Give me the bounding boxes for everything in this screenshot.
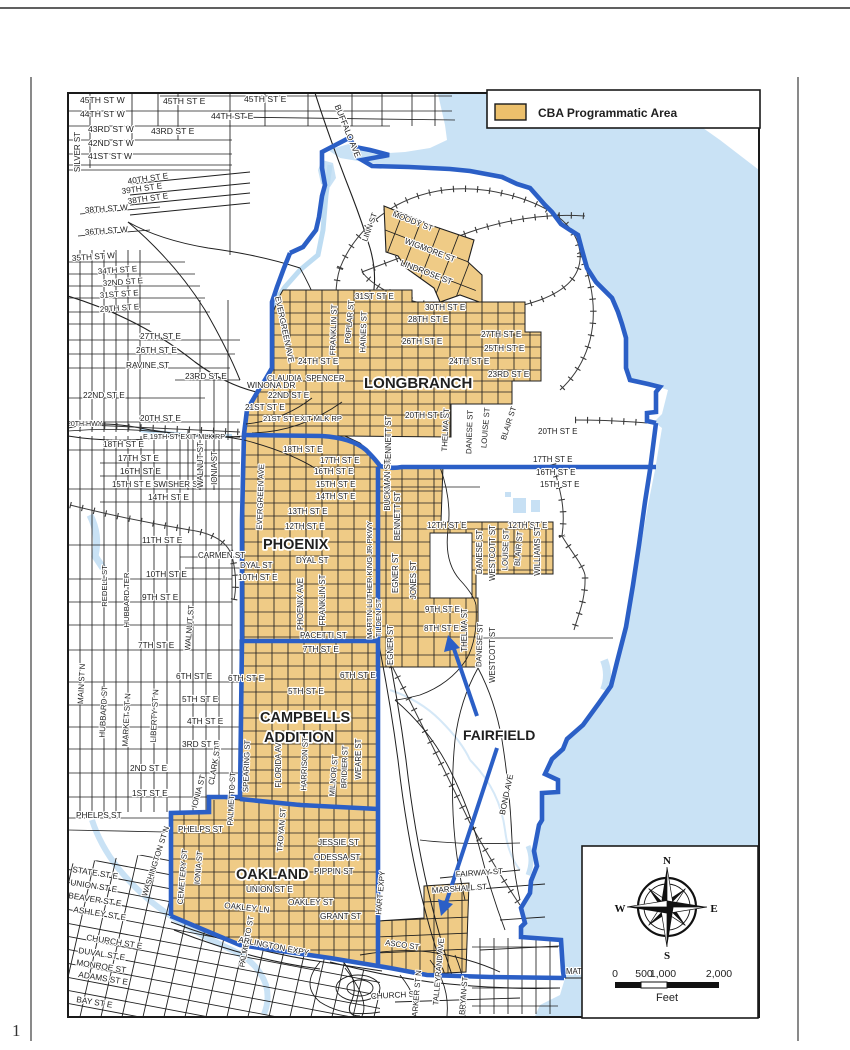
svg-text:DYAL ST: DYAL ST (296, 556, 329, 565)
svg-text:FLORIDA AV: FLORIDA AV (274, 742, 283, 788)
svg-text:23RD ST E: 23RD ST E (185, 371, 227, 381)
svg-text:6TH ST E: 6TH ST E (228, 673, 265, 683)
svg-text:15TH ST E: 15TH ST E (540, 480, 579, 489)
svg-text:31ST ST E: 31ST ST E (355, 292, 394, 301)
svg-text:IONIA ST: IONIA ST (210, 451, 219, 485)
svg-text:WESTCOTT ST: WESTCOTT ST (488, 525, 497, 581)
svg-text:E 19TH ST EXIT MLK RP: E 19TH ST EXIT MLK RP (143, 432, 225, 441)
svg-text:BUCKMAN ST: BUCKMAN ST (383, 459, 392, 510)
svg-text:4TH ST E: 4TH ST E (187, 716, 224, 726)
svg-text:MAT: MAT (566, 967, 582, 976)
svg-text:S: S (664, 950, 670, 962)
svg-text:24TH ST E: 24TH ST E (298, 357, 339, 366)
svg-text:PHELPS ST: PHELPS ST (178, 825, 223, 834)
svg-text:45TH ST W: 45TH ST W (80, 95, 126, 105)
svg-text:BENNETT ST: BENNETT ST (384, 416, 393, 465)
svg-text:16TH ST E: 16TH ST E (536, 468, 575, 477)
svg-text:45TH ST E: 45TH ST E (244, 94, 287, 104)
svg-text:44TH ST E: 44TH ST E (211, 111, 254, 121)
svg-text:2,000: 2,000 (706, 968, 732, 980)
svg-text:DANESE ST: DANESE ST (474, 622, 485, 667)
svg-text:OAKLAND: OAKLAND (236, 867, 309, 883)
svg-text:FAIRFIELD: FAIRFIELD (463, 727, 535, 743)
svg-text:N: N (663, 855, 671, 867)
svg-text:FRANKLIN ST: FRANKLIN ST (328, 304, 339, 355)
svg-text:OAKLEY ST: OAKLEY ST (288, 898, 333, 907)
svg-text:42ND ST W: 42ND ST W (88, 138, 135, 148)
svg-text:LONGBRANCH: LONGBRANCH (364, 375, 472, 392)
svg-text:18TH ST E: 18TH ST E (283, 445, 322, 454)
svg-text:HAINES ST: HAINES ST (358, 311, 368, 353)
svg-text:16TH ST E: 16TH ST E (314, 467, 353, 476)
svg-text:ODESSA ST: ODESSA ST (314, 853, 360, 862)
svg-text:9TH ST E: 9TH ST E (142, 592, 179, 602)
svg-text:20TH HWY: 20TH HWY (67, 421, 103, 428)
svg-text:13TH ST E: 13TH ST E (288, 507, 327, 516)
svg-text:DANESE ST: DANESE ST (475, 530, 484, 574)
svg-text:44TH ST W: 44TH ST W (80, 109, 126, 119)
svg-text:20TH ST E: 20TH ST E (405, 411, 446, 420)
svg-text:WEARE ST: WEARE ST (354, 738, 363, 779)
svg-text:REDELL ST: REDELL ST (100, 565, 109, 607)
svg-text:15TH ST E: 15TH ST E (316, 480, 355, 489)
svg-text:EGNER ST: EGNER ST (391, 553, 400, 593)
svg-text:BRIDIER ST: BRIDIER ST (339, 745, 349, 788)
svg-text:RAVINE ST: RAVINE ST (126, 360, 169, 370)
svg-text:21ST ST EXIT MLK RP: 21ST ST EXIT MLK RP (263, 414, 342, 423)
svg-text:16TH ST E: 16TH ST E (120, 466, 161, 476)
svg-text:LOUISE ST: LOUISE ST (500, 529, 510, 570)
svg-text:18TH ST E: 18TH ST E (103, 439, 144, 449)
svg-text:TILDEN ST: TILDEN ST (374, 598, 383, 637)
svg-text:10TH ST E: 10TH ST E (146, 569, 187, 579)
svg-text:11TH ST E: 11TH ST E (142, 535, 183, 545)
svg-text:7TH ST E: 7TH ST E (138, 640, 175, 650)
svg-text:21ST ST E: 21ST ST E (245, 403, 285, 412)
svg-text:GRANT ST: GRANT ST (320, 912, 361, 921)
svg-text:SPENCER: SPENCER (306, 374, 345, 383)
svg-text:PACETTI ST: PACETTI ST (300, 631, 347, 640)
svg-text:22ND ST E: 22ND ST E (83, 390, 125, 400)
svg-text:27TH ST E: 27TH ST E (481, 330, 522, 339)
svg-text:43RD ST W: 43RD ST W (88, 124, 135, 134)
svg-text:SILVER ST: SILVER ST (73, 132, 82, 172)
svg-text:WALNUT ST: WALNUT ST (196, 442, 205, 488)
svg-text:9TH ST E: 9TH ST E (425, 605, 460, 614)
svg-text:5TH ST E: 5TH ST E (182, 694, 219, 704)
svg-text:15TH ST E SWISHER ST: 15TH ST E SWISHER ST (112, 480, 202, 489)
svg-text:CARMEN ST: CARMEN ST (198, 551, 245, 560)
svg-text:WESTCOTT ST: WESTCOTT ST (488, 627, 497, 683)
svg-text:Feet: Feet (656, 992, 678, 1004)
svg-text:23RD ST E: 23RD ST E (488, 370, 530, 379)
svg-text:10TH ST E: 10TH ST E (238, 573, 277, 582)
svg-text:CLAUDIA: CLAUDIA (267, 374, 302, 383)
svg-text:22ND ST E: 22ND ST E (268, 391, 310, 400)
svg-text:PHOENIX: PHOENIX (263, 537, 329, 553)
svg-text:8TH ST E: 8TH ST E (424, 624, 459, 633)
svg-text:41ST ST W: 41ST ST W (88, 151, 133, 161)
svg-text:EGNER ST: EGNER ST (386, 625, 395, 665)
svg-text:UNION ST E: UNION ST E (246, 885, 293, 894)
svg-text:DYAL ST: DYAL ST (240, 561, 273, 570)
svg-text:20TH ST E: 20TH ST E (538, 427, 577, 436)
svg-text:0: 0 (612, 968, 618, 980)
svg-text:27TH ST E: 27TH ST E (140, 331, 181, 341)
svg-text:DANESE ST: DANESE ST (464, 409, 475, 454)
svg-text:1,000: 1,000 (650, 968, 676, 980)
svg-text:26TH ST E: 26TH ST E (136, 345, 177, 355)
svg-text:30TH ST E: 30TH ST E (425, 303, 466, 312)
svg-text:SPEARING ST: SPEARING ST (241, 739, 252, 792)
svg-text:JONES ST: JONES ST (409, 561, 418, 599)
svg-text:43RD ST E: 43RD ST E (151, 126, 195, 136)
svg-text:1: 1 (12, 1021, 21, 1040)
svg-text:24TH ST E: 24TH ST E (449, 357, 490, 366)
svg-text:W: W (615, 903, 626, 915)
svg-text:BENNETT ST: BENNETT ST (393, 492, 402, 541)
svg-text:12TH ST E: 12TH ST E (285, 522, 324, 531)
svg-text:1ST ST E: 1ST ST E (132, 788, 168, 798)
svg-text:12TH ST E: 12TH ST E (427, 521, 466, 530)
svg-text:14TH ST E: 14TH ST E (316, 492, 355, 501)
svg-text:17TH ST E: 17TH ST E (118, 453, 159, 463)
svg-text:17TH ST E: 17TH ST E (533, 455, 572, 464)
svg-text:20TH ST E: 20TH ST E (140, 413, 181, 423)
svg-text:6TH ST E: 6TH ST E (176, 671, 213, 681)
svg-text:HUBBARD TER: HUBBARD TER (122, 572, 131, 627)
svg-text:WILLIAMS ST: WILLIAMS ST (533, 526, 542, 576)
svg-text:CAMPBELLS: CAMPBELLS (260, 710, 351, 726)
svg-text:6TH ST E: 6TH ST E (340, 671, 376, 680)
svg-text:THELMA ST: THELMA ST (460, 608, 469, 652)
svg-text:MARTIN LUTHER KING JR PKWY: MARTIN LUTHER KING JR PKWY (365, 521, 374, 639)
svg-text:HARRISON ST: HARRISON ST (299, 737, 310, 791)
svg-text:PHOENIX AVE: PHOENIX AVE (296, 578, 305, 630)
svg-text:5TH ST E: 5TH ST E (288, 687, 324, 696)
svg-text:PHELPS ST: PHELPS ST (76, 810, 122, 820)
svg-text:E: E (710, 903, 717, 915)
svg-text:7TH ST E: 7TH ST E (303, 645, 339, 654)
svg-text:26TH ST E: 26TH ST E (402, 337, 443, 346)
svg-text:17TH ST E: 17TH ST E (320, 456, 359, 465)
svg-text:JESSIE ST: JESSIE ST (318, 838, 359, 847)
svg-text:25TH ST E: 25TH ST E (484, 344, 525, 353)
svg-text:14TH ST E: 14TH ST E (148, 492, 189, 502)
svg-text:CBA Programmatic Area: CBA Programmatic Area (538, 106, 677, 120)
svg-text:28TH ST E: 28TH ST E (408, 315, 449, 324)
svg-text:2ND ST E: 2ND ST E (130, 763, 168, 773)
svg-text:PIPPIN ST: PIPPIN ST (314, 867, 354, 876)
svg-text:FRANKLIN ST: FRANKLIN ST (318, 574, 327, 625)
svg-text:45TH ST E: 45TH ST E (163, 96, 206, 106)
